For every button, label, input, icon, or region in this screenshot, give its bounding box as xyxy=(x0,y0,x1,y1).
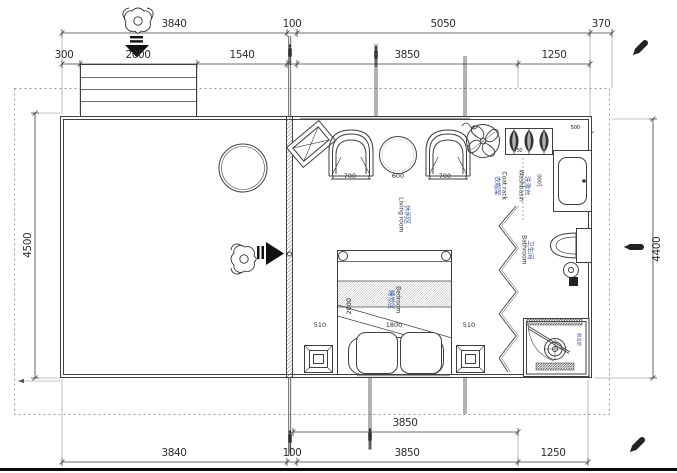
pen-icon xyxy=(631,39,649,57)
room-label-washbasin-zh: 洗漱台 xyxy=(524,176,531,196)
entrance-steps xyxy=(81,65,197,117)
dim-bed-2000: 2000 xyxy=(346,291,353,321)
dim-bed-510-left: 510 xyxy=(305,322,335,329)
room-label-living-zh: 休闲区 xyxy=(404,205,411,225)
room-label-bathroom: 卫生间 Bathroom xyxy=(520,222,533,278)
dim-chair-700: 700 xyxy=(335,173,365,180)
page-border-line xyxy=(0,468,677,471)
dim-bottom-3840: 3840 xyxy=(144,448,204,459)
room-label-washbasin: 洗漱台 Washbasin xyxy=(517,158,530,214)
dim-chair-700: 700 xyxy=(430,173,460,180)
washbasin xyxy=(554,151,592,212)
divider-wall xyxy=(287,117,293,378)
person-icon xyxy=(231,244,256,274)
dim-table-600: 600 xyxy=(383,173,413,180)
dim-bottom-100: 100 xyxy=(262,448,322,459)
dim-bottom-3850: 3850 xyxy=(377,448,437,459)
plan-linework xyxy=(0,0,677,473)
pen-icon xyxy=(624,244,644,250)
dim-bottom-1250: 1250 xyxy=(523,448,583,459)
dim-top2-1540: 1540 xyxy=(212,50,272,61)
dim-coatrack-750: 750 xyxy=(503,149,533,154)
room-label-bedroom-zh: 睡觉区 xyxy=(387,290,394,310)
dim-top2-300: 300 xyxy=(34,50,94,61)
room-label-bathroom-en: Bathroom xyxy=(520,235,526,264)
dim-top2-1250: 1250 xyxy=(524,50,584,61)
dim-bottom-inner-3850: 3850 xyxy=(375,418,435,429)
dim-top-3840: 3840 xyxy=(144,19,204,30)
dim-right-4400: 4400 xyxy=(652,229,663,269)
room-label-coat-rack: Coat rack 衣帽架 xyxy=(493,158,506,214)
dim-top2-3850: 3850 xyxy=(377,50,437,61)
dim-top-100: 100 xyxy=(262,19,322,30)
dim-washbasin-500: 500 xyxy=(560,126,590,132)
dim-bed-510-right: 510 xyxy=(454,322,484,329)
dim-left-4500: 4500 xyxy=(23,225,34,265)
room-label-bedroom: Bedroom 睡觉区 xyxy=(387,275,400,325)
room-label-washbasin-en: Washbasin xyxy=(517,170,523,202)
dim-top-5050: 5050 xyxy=(413,19,473,30)
floor-plan-drawing: 3840 100 5050 370 300 2000 1540 3850 125… xyxy=(0,0,677,473)
room-label-living-en: Living room xyxy=(397,197,403,232)
room-label-bathroom-zh: 卫生间 xyxy=(527,240,534,260)
room-label-coat-rack-zh: 衣帽架 xyxy=(493,176,500,196)
pen-icon xyxy=(628,436,646,454)
dim-top2-2000: 2000 xyxy=(108,50,168,61)
room-label-shower-zh: 淋浴房 xyxy=(575,333,580,347)
dim-top-370: 370 xyxy=(571,19,631,30)
room-label-living: 休闲区 Living room xyxy=(397,187,410,243)
room-label-shower: 淋浴房 xyxy=(575,324,580,354)
dim-washbasin-1000: 1000 xyxy=(538,166,544,196)
building-walls xyxy=(61,117,592,378)
